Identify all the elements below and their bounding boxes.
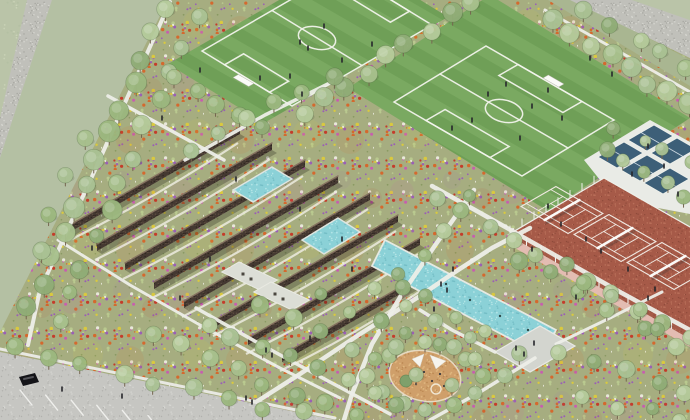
park-svg (0, 0, 690, 420)
picnic-table (282, 298, 285, 301)
picnic-table (250, 278, 253, 281)
picnic-table (242, 273, 245, 276)
duck (469, 299, 471, 301)
picnic-table (274, 293, 277, 296)
child (431, 380, 433, 382)
duck (445, 283, 447, 285)
park-aerial-rendering (0, 0, 690, 420)
scene-canvas (0, 0, 690, 420)
child (439, 373, 441, 375)
duck (499, 315, 501, 317)
duck (527, 329, 529, 331)
